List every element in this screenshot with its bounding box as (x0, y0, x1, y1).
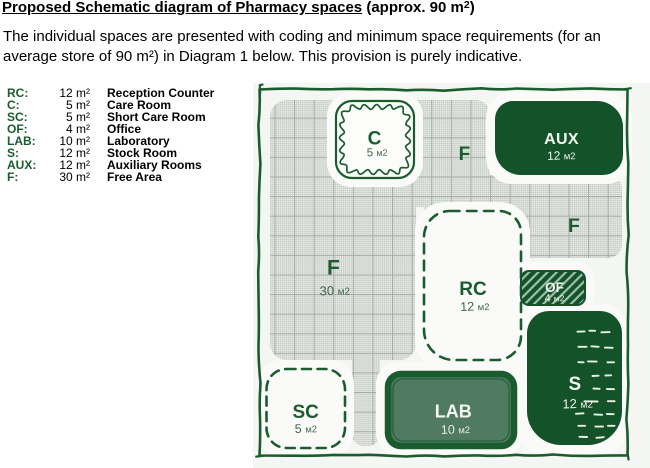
svg-text:S: S (568, 374, 581, 395)
svg-text:AUX: AUX (544, 131, 579, 148)
svg-text:RC: RC (459, 279, 487, 300)
svg-text:F: F (568, 215, 580, 237)
svg-text:SC: SC (292, 402, 319, 423)
svg-text:F: F (459, 144, 471, 165)
svg-text:10 м2: 10 м2 (441, 422, 471, 437)
svg-text:4 м2: 4 м2 (544, 292, 564, 305)
svg-text:F: F (327, 256, 340, 279)
svg-text:12 м2: 12 м2 (547, 148, 576, 163)
svg-text:5 м2: 5 м2 (367, 147, 388, 160)
svg-text:LAB: LAB (435, 402, 472, 422)
svg-text:12 м2: 12 м2 (460, 299, 490, 314)
